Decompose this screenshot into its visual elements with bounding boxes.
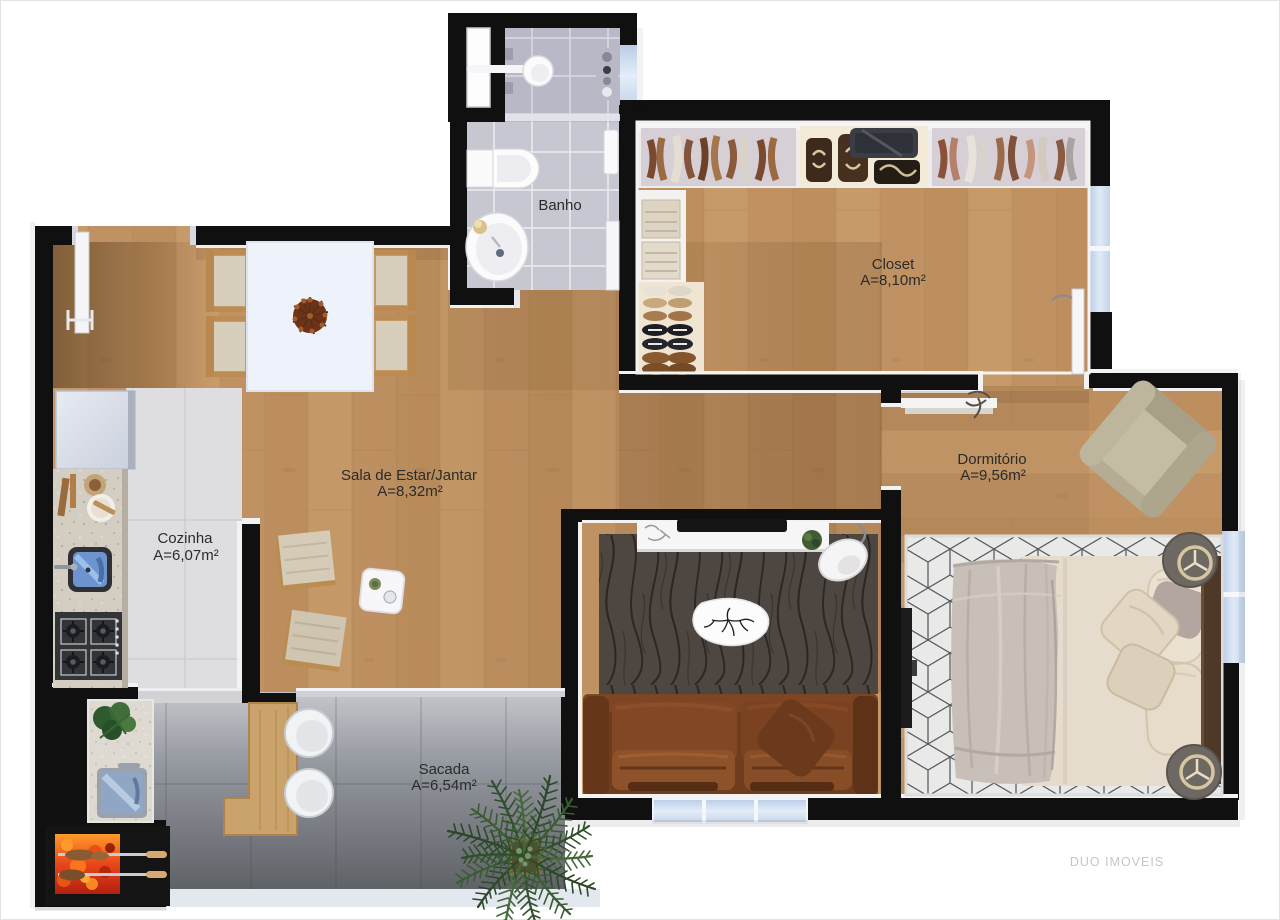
- svg-text:A=6,54m²: A=6,54m²: [411, 777, 476, 794]
- svg-text:Closet: Closet: [872, 256, 915, 273]
- svg-text:Sacada: Sacada: [419, 761, 471, 778]
- svg-text:A=6,07m²: A=6,07m²: [153, 547, 218, 564]
- svg-text:Dormitório: Dormitório: [957, 451, 1026, 468]
- svg-text:A=8,10m²: A=8,10m²: [860, 272, 925, 289]
- svg-text:A=8,32m²: A=8,32m²: [377, 483, 442, 500]
- svg-text:Cozinha: Cozinha: [157, 530, 213, 547]
- svg-text:A=9,56m²: A=9,56m²: [960, 467, 1025, 484]
- svg-text:DUO IMOVEIS: DUO IMOVEIS: [1070, 855, 1164, 869]
- svg-text:Banho: Banho: [538, 197, 581, 214]
- svg-text:Sala de Estar/Jantar: Sala de Estar/Jantar: [341, 467, 477, 484]
